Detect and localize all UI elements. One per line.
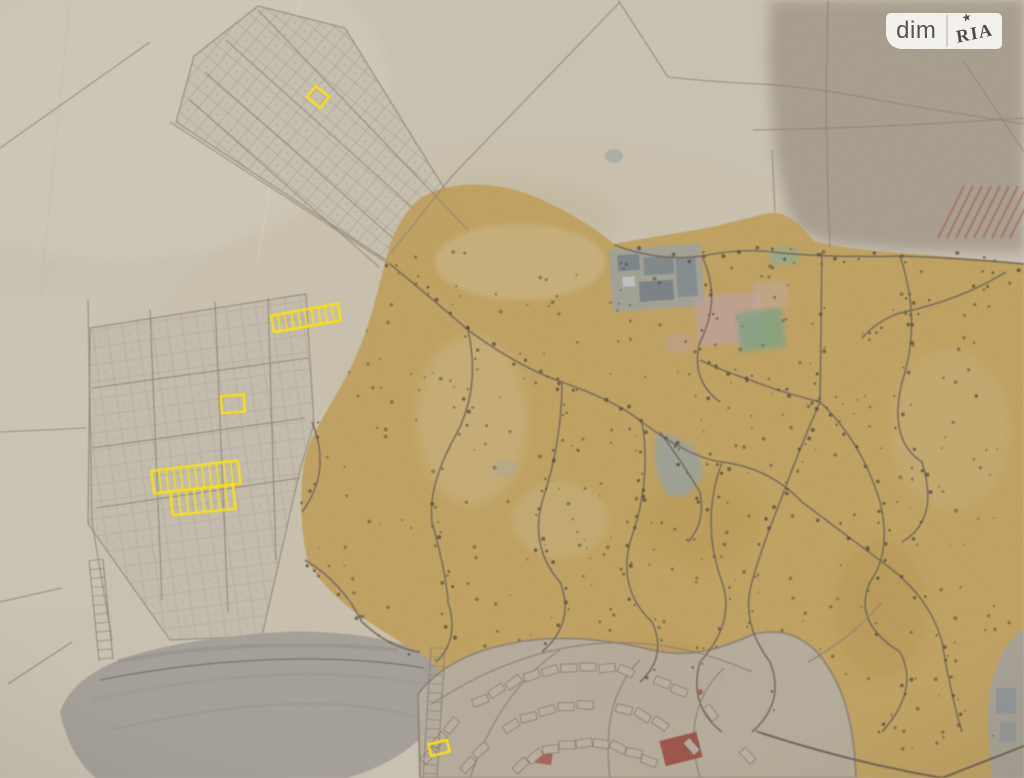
map-photo (0, 0, 1024, 778)
dim-ria-watermark: dim ★ RIA (886, 13, 1002, 49)
ria-logo-text: RIA (955, 19, 995, 48)
ria-logo: ★ RIA (948, 13, 1002, 49)
photo-grain (0, 0, 1024, 778)
dim-logo: dim (886, 13, 946, 49)
cadastral-map (0, 0, 1024, 778)
